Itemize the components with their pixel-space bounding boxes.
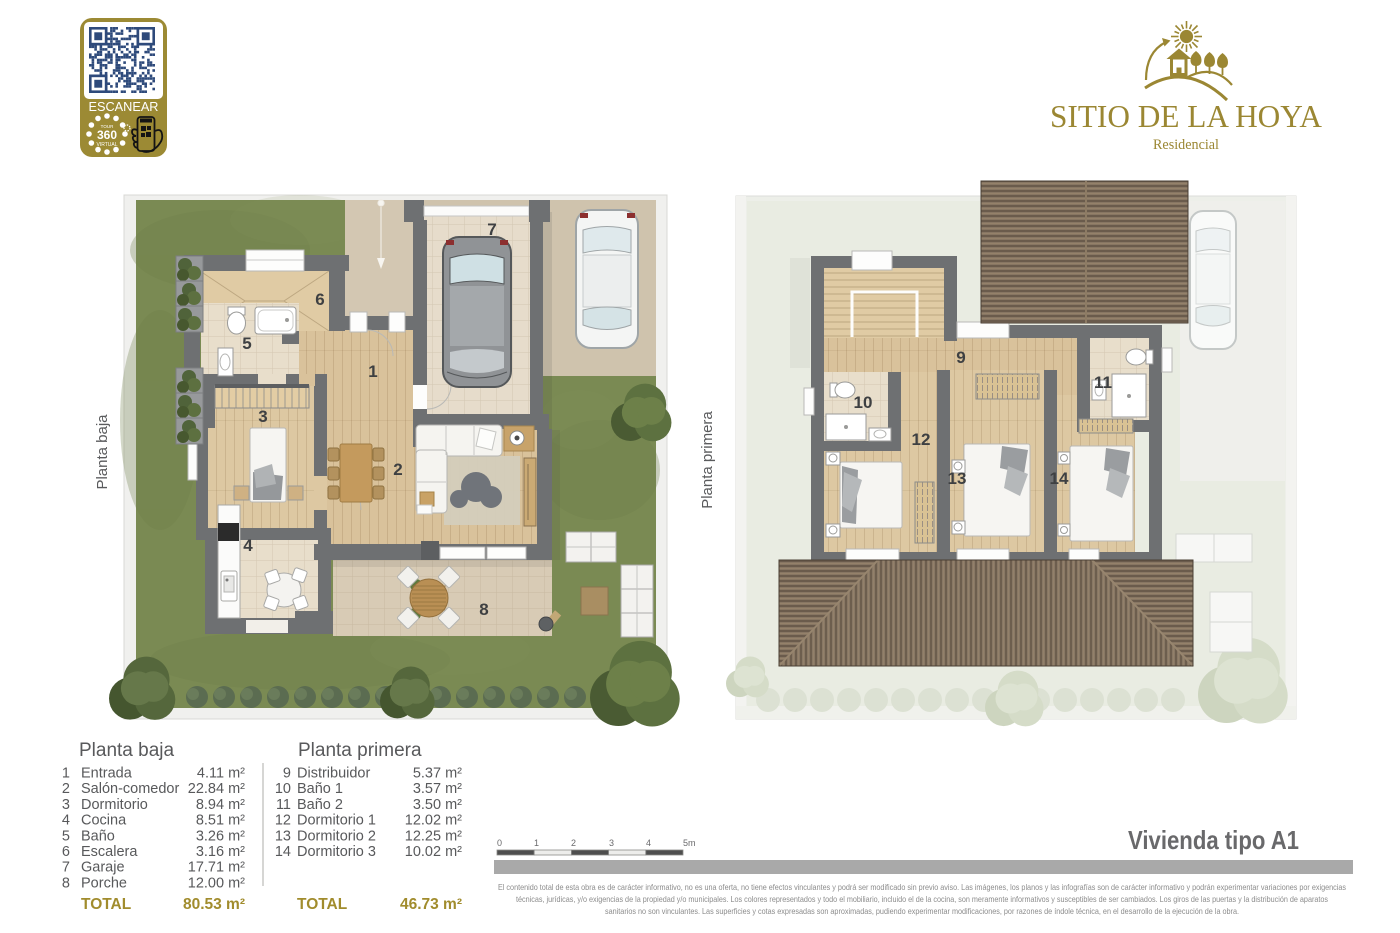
svg-text:1: 1 (534, 838, 539, 848)
svg-text:12: 12 (912, 430, 931, 449)
svg-text:2: 2 (62, 781, 70, 797)
svg-text:3.57 m²: 3.57 m² (413, 781, 462, 797)
svg-text:Salón-comedor: Salón-comedor (81, 781, 179, 797)
svg-text:Garaje: Garaje (81, 860, 125, 876)
svg-text:8.94 m²: 8.94 m² (196, 797, 245, 813)
svg-text:4.11 m²: 4.11 m² (197, 766, 245, 782)
svg-text:Vivienda tipo A1: Vivienda tipo A1 (1128, 825, 1299, 855)
svg-text:3.16 m²: 3.16 m² (196, 844, 245, 860)
svg-text:3: 3 (609, 838, 614, 848)
svg-text:14: 14 (1050, 469, 1069, 488)
svg-text:46.73 m²: 46.73 m² (400, 896, 462, 913)
svg-text:11: 11 (1094, 373, 1112, 392)
svg-text:12.25 m²: 12.25 m² (405, 828, 462, 844)
svg-text:5m: 5m (683, 838, 696, 848)
svg-text:22.84 m²: 22.84 m² (188, 781, 245, 797)
svg-text:13: 13 (275, 828, 291, 844)
svg-text:ESCANEAR: ESCANEAR (89, 99, 159, 114)
svg-text:6: 6 (62, 844, 70, 860)
svg-text:SITIO DE LA HOYA: SITIO DE LA HOYA (1050, 98, 1322, 134)
svg-text:4: 4 (62, 813, 70, 829)
svg-text:13: 13 (948, 469, 967, 488)
svg-text:10.02 m²: 10.02 m² (405, 844, 462, 860)
svg-text:Porche: Porche (81, 875, 127, 891)
svg-text:3: 3 (258, 407, 267, 426)
svg-text:5: 5 (62, 828, 70, 844)
svg-text:360: 360 (97, 128, 117, 142)
svg-text:17.71 m²: 17.71 m² (188, 860, 245, 876)
svg-text:Escalera: Escalera (81, 844, 138, 860)
svg-text:8.51 m²: 8.51 m² (196, 813, 245, 829)
svg-text:10: 10 (854, 393, 873, 412)
svg-text:8: 8 (479, 600, 488, 619)
svg-text:8: 8 (62, 875, 70, 891)
svg-text:11: 11 (276, 797, 291, 813)
svg-text:sanitarios no son vinculantes.: sanitarios no son vinculantes. Las super… (605, 906, 1239, 916)
svg-text:Entrada: Entrada (81, 766, 133, 782)
svg-text:Baño 2: Baño 2 (297, 797, 343, 813)
svg-text:10: 10 (275, 781, 291, 797)
svg-text:12: 12 (275, 813, 291, 829)
svg-text:80.53 m²: 80.53 m² (183, 896, 245, 913)
svg-text:Dormitorio: Dormitorio (81, 797, 148, 813)
svg-text:Dormitorio 1: Dormitorio 1 (297, 813, 376, 829)
svg-text:2: 2 (393, 460, 402, 479)
svg-text:VIRTUAL: VIRTUAL (96, 142, 117, 148)
svg-text:Baño: Baño (81, 828, 115, 844)
svg-text:14: 14 (275, 844, 291, 860)
svg-text:4: 4 (243, 536, 253, 555)
svg-text:12.00 m²: 12.00 m² (188, 875, 245, 891)
svg-text:9: 9 (956, 348, 965, 367)
svg-text:Planta primera: Planta primera (298, 740, 422, 761)
svg-text:3.26 m²: 3.26 m² (196, 828, 245, 844)
svg-text:TOTAL: TOTAL (297, 896, 347, 913)
svg-text:Planta primera: Planta primera (699, 411, 716, 509)
svg-text:6: 6 (315, 290, 324, 309)
svg-text:4: 4 (646, 838, 651, 848)
svg-text:5.37 m²: 5.37 m² (413, 766, 462, 782)
svg-text:Residencial: Residencial (1153, 137, 1219, 153)
svg-text:Planta baja: Planta baja (94, 414, 111, 490)
svg-text:El contenido total de esta obr: El contenido total de esta obra es de ca… (498, 882, 1347, 892)
svg-text:0: 0 (497, 838, 502, 848)
svg-text:12.02 m²: 12.02 m² (405, 813, 462, 829)
svg-text:1: 1 (62, 766, 70, 782)
svg-text:3.50 m²: 3.50 m² (413, 797, 462, 813)
svg-text:Dormitorio 2: Dormitorio 2 (297, 828, 376, 844)
svg-text:técnicas, jurídicas, y/o exige: técnicas, jurídicas, y/o exigencias de l… (516, 894, 1329, 904)
svg-text:Cocina: Cocina (81, 813, 127, 829)
svg-text:9: 9 (283, 766, 291, 782)
svg-text:TOTAL: TOTAL (81, 896, 131, 913)
svg-text:1: 1 (368, 362, 377, 381)
svg-text:5: 5 (242, 334, 251, 353)
svg-text:3: 3 (62, 797, 70, 813)
svg-text:2: 2 (571, 838, 576, 848)
svg-text:Planta baja: Planta baja (79, 740, 175, 761)
svg-text:7: 7 (487, 220, 496, 239)
svg-text:Distribuidor: Distribuidor (297, 766, 370, 782)
svg-text:Baño 1: Baño 1 (297, 781, 343, 797)
svg-text:7: 7 (62, 860, 70, 876)
svg-text:Dormitorio 3: Dormitorio 3 (297, 844, 376, 860)
